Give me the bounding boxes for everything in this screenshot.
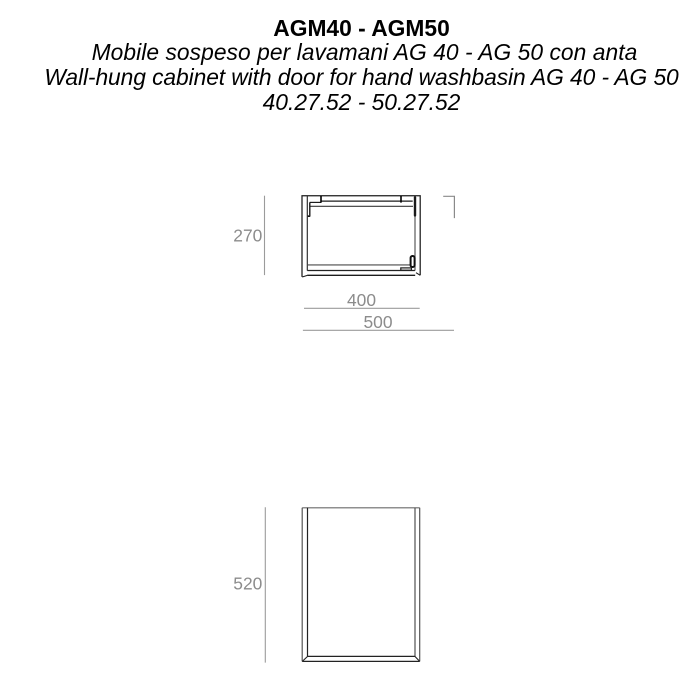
svg-text:520: 520 [233, 574, 262, 594]
svg-text:270: 270 [233, 226, 262, 246]
svg-text:500: 500 [363, 312, 392, 332]
svg-text:400: 400 [347, 290, 376, 310]
